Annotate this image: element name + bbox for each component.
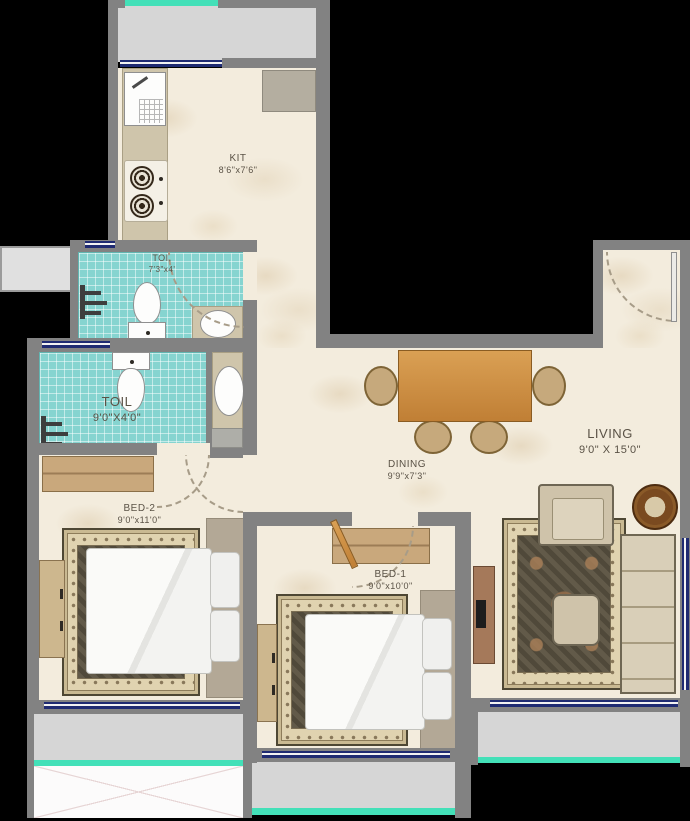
shower-icon bbox=[80, 283, 114, 321]
window bbox=[682, 538, 689, 690]
room-dims: 9'0"X4'0" bbox=[52, 411, 182, 425]
dining-label: DINING 9'9"x7'3" bbox=[352, 458, 462, 483]
entrance-door-leaf bbox=[671, 252, 677, 322]
bed1-balcony-floor bbox=[252, 762, 455, 810]
basin-counter-cap bbox=[210, 428, 243, 448]
bed2-label: BED-2 9'0"x11'0" bbox=[82, 502, 197, 527]
wall bbox=[471, 712, 478, 765]
wall bbox=[593, 240, 603, 334]
burner-icon bbox=[130, 194, 154, 218]
pillow bbox=[210, 610, 240, 662]
dining-chair bbox=[470, 420, 508, 454]
room-name: BED-2 bbox=[82, 502, 197, 515]
wall bbox=[118, 0, 125, 8]
utility-balcony-edge bbox=[125, 0, 218, 6]
bed1-bed bbox=[305, 614, 425, 730]
window bbox=[44, 702, 240, 710]
bed2-bed bbox=[86, 548, 212, 674]
wall bbox=[222, 58, 316, 68]
bed1-label: BED-1 9'0"x10'0" bbox=[328, 568, 453, 593]
drainboard-grid bbox=[139, 99, 163, 123]
living-balcony-floor bbox=[478, 712, 680, 757]
door-opening bbox=[243, 455, 257, 512]
service-ledge bbox=[0, 246, 76, 292]
stove-icon bbox=[124, 160, 168, 222]
wall bbox=[27, 338, 39, 714]
kitchen-passage-floor bbox=[250, 248, 316, 348]
pillow bbox=[422, 672, 452, 720]
washbasin-icon bbox=[214, 366, 244, 416]
room-name: DINING bbox=[352, 458, 462, 471]
wall bbox=[70, 252, 78, 344]
window bbox=[120, 60, 222, 68]
dining-chair bbox=[532, 366, 566, 406]
bed2-console bbox=[42, 456, 154, 492]
pillow bbox=[210, 552, 240, 608]
door-opening bbox=[352, 512, 418, 526]
wall bbox=[243, 300, 257, 455]
wall bbox=[218, 0, 322, 8]
living-balcony-edge bbox=[478, 757, 680, 763]
bed1-headboard-panel bbox=[420, 590, 458, 750]
pillow bbox=[422, 618, 452, 670]
wall bbox=[27, 714, 34, 818]
wall bbox=[316, 334, 603, 348]
room-dims: 7'3"x4' bbox=[112, 265, 212, 275]
room-dims: 9'0"x10'0" bbox=[328, 581, 453, 593]
door-opening bbox=[243, 252, 257, 300]
room-dims: 9'0"x11'0" bbox=[82, 515, 197, 527]
room-dims: 9'0" X 15'0" bbox=[550, 443, 670, 457]
entrance-door-arc bbox=[606, 252, 676, 322]
wall bbox=[27, 443, 157, 455]
toilet-main-label: TOIL 9'0"X4'0" bbox=[52, 394, 182, 425]
window bbox=[42, 341, 110, 349]
utility-balcony-floor bbox=[118, 6, 316, 62]
kitchen-platform bbox=[262, 70, 316, 112]
wall bbox=[243, 240, 257, 252]
dining-chair bbox=[414, 420, 452, 454]
ottoman bbox=[552, 594, 600, 646]
room-name: KIT bbox=[178, 152, 298, 165]
window bbox=[262, 751, 450, 759]
wall bbox=[593, 240, 690, 250]
dining-table bbox=[398, 350, 532, 422]
sofa bbox=[620, 534, 676, 694]
dining-chair bbox=[364, 366, 398, 406]
room-name: TOI. bbox=[112, 253, 212, 265]
bed2-open-deck bbox=[34, 766, 243, 818]
room-name: LIVING bbox=[550, 426, 670, 443]
burner-icon bbox=[130, 166, 154, 190]
wall bbox=[245, 762, 252, 818]
bed1-wardrobe bbox=[257, 624, 277, 722]
bed1-balcony-edge bbox=[252, 808, 455, 815]
floor-plan: KIT 8'6"x7'6" TOI. 7'3"x4' TOIL 9'0"X4'0… bbox=[0, 0, 690, 821]
room-dims: 9'9"x7'3" bbox=[352, 471, 462, 483]
plant-icon bbox=[632, 484, 678, 530]
toilet-top-label: TOI. 7'3"x4' bbox=[112, 253, 212, 275]
wall bbox=[455, 762, 471, 818]
sink-icon bbox=[124, 72, 166, 126]
window bbox=[490, 700, 678, 708]
room-name: BED-1 bbox=[328, 568, 453, 581]
stove-knob bbox=[159, 177, 163, 181]
tv-icon bbox=[476, 600, 486, 628]
wall bbox=[455, 512, 471, 763]
living-label: LIVING 9'0" X 15'0" bbox=[550, 426, 670, 457]
stove-knob bbox=[159, 201, 163, 205]
room-name: TOIL bbox=[52, 394, 182, 411]
faucet-icon bbox=[132, 76, 148, 89]
wall bbox=[316, 0, 330, 348]
bed2-wardrobe bbox=[39, 560, 65, 658]
toilet-wc-icon bbox=[133, 282, 161, 324]
armchair bbox=[538, 484, 614, 546]
room-dims: 8'6"x7'6" bbox=[178, 165, 298, 177]
bed2-balcony-floor bbox=[34, 714, 243, 764]
kitchen-label: KIT 8'6"x7'6" bbox=[178, 152, 298, 177]
window bbox=[85, 241, 115, 249]
wall bbox=[108, 0, 118, 252]
wall bbox=[206, 352, 212, 448]
